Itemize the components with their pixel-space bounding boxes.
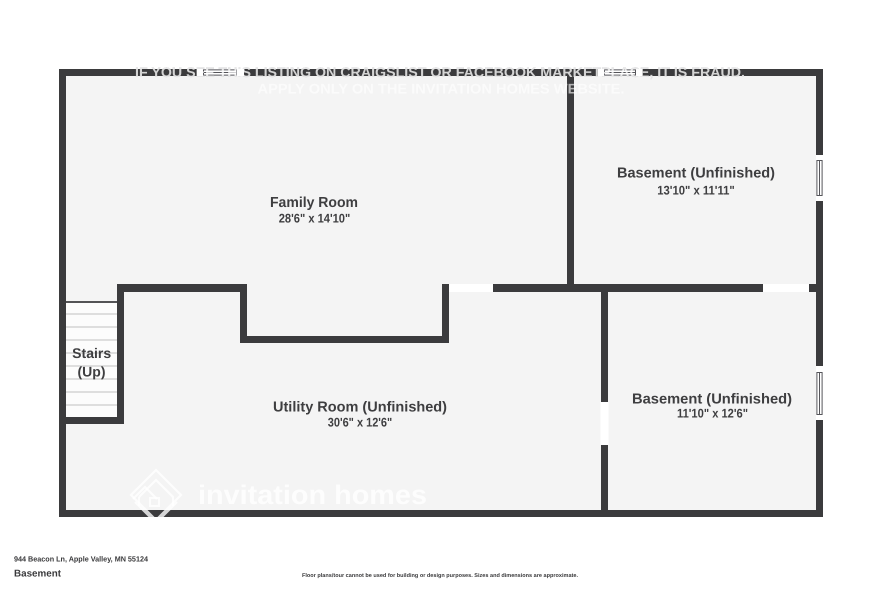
svg-text:(Up): (Up) [78,364,106,380]
svg-text:IF YOU SEE THIS LISTING ON CRA: IF YOU SEE THIS LISTING ON CRAIGSLIST OR… [135,64,745,80]
svg-text:APPLY ONLY ON THE INVITATION H: APPLY ONLY ON THE INVITATION HOMES WEBSI… [258,81,625,97]
svg-text:Floor plans/tour cannot be use: Floor plans/tour cannot be used for buil… [302,573,578,579]
svg-text:Basement (Unfinished): Basement (Unfinished) [617,165,775,181]
svg-text:11'10" x 12'6": 11'10" x 12'6" [677,406,748,420]
svg-text:28'6" x 14'10": 28'6" x 14'10" [279,212,351,226]
svg-text:Basement: Basement [14,569,62,580]
svg-text:invitation homes: invitation homes [198,480,427,510]
svg-text:30'6" x 12'6": 30'6" x 12'6" [328,416,393,430]
svg-text:13'10" x 11'11": 13'10" x 11'11" [657,183,735,197]
svg-text:Utility Room (Unfinished): Utility Room (Unfinished) [273,400,447,416]
svg-text:944 Beacon Ln, Apple Valley, M: 944 Beacon Ln, Apple Valley, MN 55124 [14,555,149,564]
svg-text:Basement (Unfinished): Basement (Unfinished) [632,391,792,407]
svg-text:Stairs: Stairs [72,345,111,361]
svg-text:Family Room: Family Room [270,195,358,211]
